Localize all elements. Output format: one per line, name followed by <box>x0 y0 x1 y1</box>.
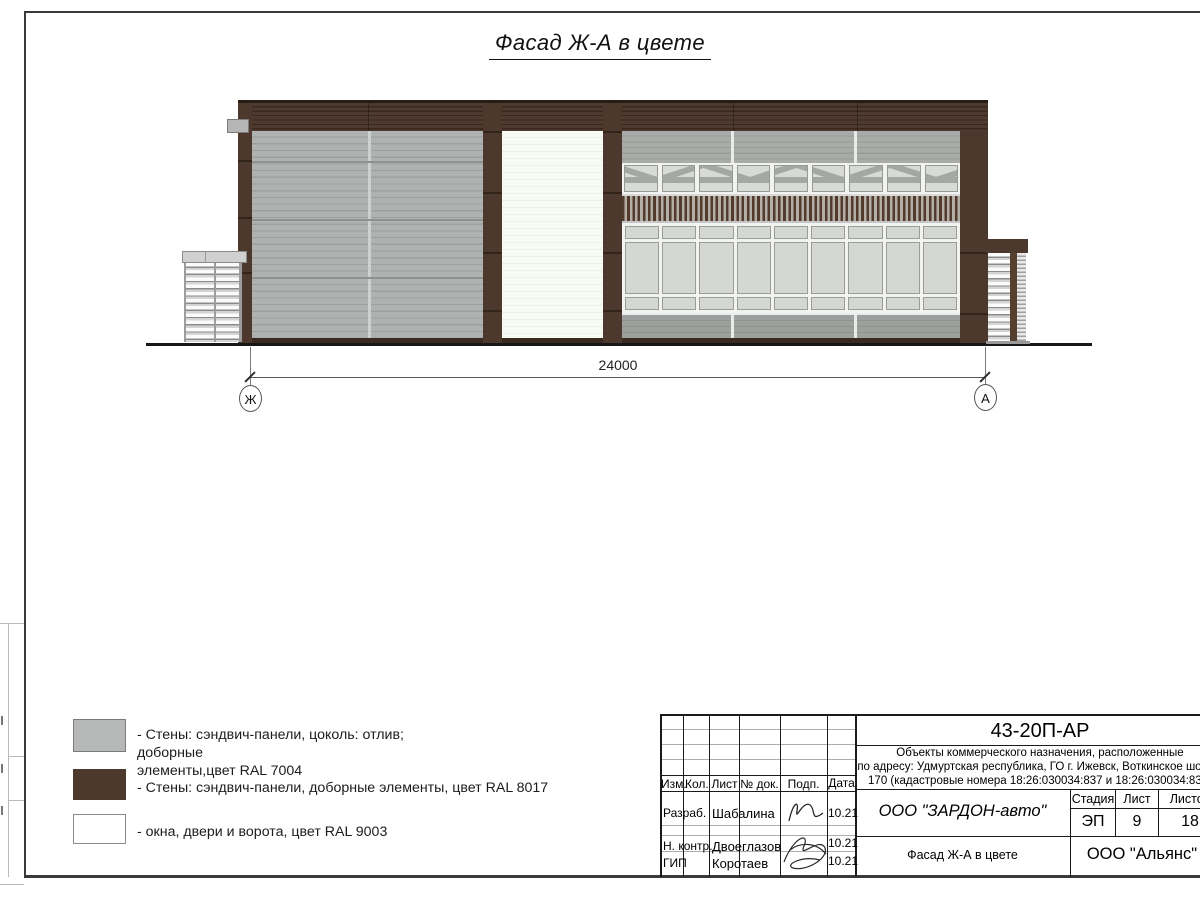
clerestory-pane <box>737 165 771 192</box>
tb-col-podp: Подп. <box>781 777 826 791</box>
tb-sheet-value: 9 <box>1116 813 1158 831</box>
column-joint <box>960 252 988 254</box>
window-column <box>811 226 845 310</box>
window-pane <box>625 297 659 310</box>
frame-bottom <box>24 875 1200 878</box>
window-pane <box>774 297 808 310</box>
window-pane <box>811 297 845 310</box>
clerestory-pane <box>849 165 883 192</box>
margin-tick <box>8 756 24 757</box>
tb-line <box>855 789 1200 790</box>
margin-tick <box>0 623 24 624</box>
louver-post <box>214 263 216 342</box>
window-column <box>699 226 733 310</box>
band-divider <box>731 131 734 163</box>
ground-line <box>146 343 1092 346</box>
tb-stage-label: Стадия <box>1071 792 1115 806</box>
window-column <box>923 226 957 310</box>
window-pane <box>774 242 808 294</box>
extension-line-left <box>250 347 251 389</box>
legend-item-1: - Стены: сэндвич-панели, цоколь: отлив; … <box>137 726 467 780</box>
window-pane <box>923 297 957 310</box>
column-joint <box>603 252 622 254</box>
clerestory-pane <box>662 165 696 192</box>
window-pane <box>848 242 882 294</box>
louver-cap-left <box>182 251 247 263</box>
margin-tick <box>8 800 24 801</box>
tb-date-1: 10.21 <box>828 806 855 820</box>
tb-line <box>1070 808 1200 809</box>
tb-line <box>660 791 855 792</box>
window-pane <box>886 297 920 310</box>
column-joint <box>603 131 622 133</box>
facade-column-b <box>603 103 622 343</box>
louver-post <box>184 263 186 342</box>
facade-column-a <box>483 103 502 343</box>
panel-joint <box>252 161 483 163</box>
column-joint <box>483 192 502 194</box>
parapet-joint <box>733 103 734 134</box>
window-pane <box>699 226 733 239</box>
page-title-text: Фасад Ж-А в цвете <box>489 30 711 60</box>
axis-bubble-zh: Ж <box>239 385 262 412</box>
window-pane <box>699 242 733 294</box>
tb-description-line: 170 (кадастровые номера 18:26:030034:837… <box>855 775 1200 789</box>
clerestory-pane <box>774 165 808 192</box>
tb-role-3: ГИП <box>663 856 687 870</box>
parapet-joint <box>857 103 858 134</box>
margin-line <box>8 623 9 877</box>
tb-col-doc: № док. <box>740 777 779 791</box>
facade-corner-right <box>960 131 988 343</box>
window-pane <box>737 297 771 310</box>
window-pane <box>699 297 733 310</box>
window-column <box>625 226 659 310</box>
tb-col-kol: Кол. <box>685 777 708 791</box>
band-divider <box>854 131 857 163</box>
clerestory-pane <box>887 165 921 192</box>
tb-description: Объекты коммерческого назначения, распол… <box>855 747 1200 788</box>
window-column <box>737 226 771 310</box>
band-divider <box>854 315 857 340</box>
tb-vline <box>660 714 662 877</box>
dimension-label: 24000 <box>548 357 688 373</box>
louver-base-right <box>986 341 1030 344</box>
window-pane <box>811 242 845 294</box>
facade-base-band <box>622 313 960 340</box>
window-pane <box>848 297 882 310</box>
window-column <box>774 226 808 310</box>
window-pane <box>737 226 771 239</box>
window-pane <box>662 297 696 310</box>
clerestory-pane <box>624 165 658 192</box>
louver-side-return <box>1017 253 1026 341</box>
louver-post <box>239 263 242 342</box>
tb-name-3: Коротаев <box>712 856 768 871</box>
window-pane <box>774 226 808 239</box>
facade-gate <box>502 131 603 341</box>
louver-cap-right <box>986 239 1028 253</box>
tb-description-line: Объекты коммерческого назначения, распол… <box>855 747 1200 761</box>
tb-sheet-label: Лист <box>1116 792 1158 806</box>
legend-swatch-gray <box>73 719 126 752</box>
tb-drawing-name: Фасад Ж-А в цвете <box>857 848 1068 862</box>
tb-line <box>660 714 1200 716</box>
tb-doc-code: 43-20П-АР <box>855 720 1200 743</box>
clerestory-pane <box>699 165 733 192</box>
facade-slat-band <box>622 194 960 223</box>
tb-org-name: ООО "Альянс" <box>1072 845 1200 864</box>
tb-sheets-value: 18 <box>1159 813 1200 831</box>
dimension-line <box>250 377 986 378</box>
window-pane <box>923 242 957 294</box>
window-pane <box>737 242 771 294</box>
margin-mark <box>1 716 3 725</box>
window-pane <box>886 242 920 294</box>
column-joint <box>483 310 502 312</box>
parapet-joint <box>368 103 369 134</box>
panel-joint <box>252 277 483 279</box>
tb-line <box>660 775 855 776</box>
tb-col-list: Лист <box>711 777 738 791</box>
column-joint <box>238 160 252 162</box>
tb-name-2: Двоеглазов <box>712 839 781 854</box>
clerestory-pane <box>812 165 846 192</box>
window-pane <box>662 242 696 294</box>
window-pane <box>811 226 845 239</box>
column-joint <box>960 313 988 315</box>
axis-bubble-a: А <box>974 384 997 411</box>
window-pane <box>625 226 659 239</box>
tb-line <box>855 836 1200 837</box>
extension-line-right <box>985 347 986 389</box>
column-joint <box>483 252 502 254</box>
drawing-sheet: { "sheet": { "title": "Фасад Ж-А в цвете… <box>0 0 1200 900</box>
clerestory-overlay <box>624 165 958 192</box>
column-joint <box>603 192 622 194</box>
tb-col-izm: Изм. <box>661 777 683 791</box>
window-pane <box>848 226 882 239</box>
tb-role-2: Н. контр. <box>663 839 713 853</box>
tb-sheets-label: Листов <box>1159 792 1200 806</box>
tb-role-1: Разраб. <box>663 806 706 820</box>
facade-band-top <box>622 131 960 163</box>
window-column <box>886 226 920 310</box>
page-title: Фасад Ж-А в цвете <box>420 30 780 60</box>
window-column <box>848 226 882 310</box>
roof-outlet <box>227 119 249 133</box>
tb-lightline <box>660 729 855 730</box>
column-joint <box>238 217 252 219</box>
legend-text: - Стены: сэндвич-панели, цоколь: отлив; … <box>137 726 467 762</box>
column-joint <box>603 310 622 312</box>
tb-lightline <box>660 759 855 760</box>
margin-mark <box>1 764 3 773</box>
tb-company: ООО "ЗАРДОН-авто" <box>857 802 1068 821</box>
clerestory-row <box>622 163 960 194</box>
window-grid <box>622 223 960 313</box>
cap-seam <box>205 252 206 262</box>
tb-lightline <box>660 744 855 745</box>
legend-swatch-brown <box>73 769 126 800</box>
margin-tick <box>0 884 24 885</box>
signature-gip <box>776 828 834 876</box>
louver-post-right <box>1010 253 1017 341</box>
panel-joint <box>252 219 483 221</box>
tb-col-data: Дата <box>828 776 855 790</box>
clerestory-pane <box>925 165 959 192</box>
column-joint <box>483 131 502 133</box>
louver-screen-right <box>988 253 1010 341</box>
window-pane <box>886 226 920 239</box>
frame-left <box>24 11 26 877</box>
legend-text: элементы,цвет RAL 7004 <box>137 762 467 780</box>
legend-item-2: - Стены: сэндвич-панели, доборные элемен… <box>137 779 597 797</box>
band-divider <box>731 315 734 340</box>
tb-description-line: по адресу: Удмуртская республика, ГО г. … <box>855 761 1200 775</box>
window-pane <box>625 242 659 294</box>
louver-screen-left <box>184 263 242 342</box>
window-pane <box>662 226 696 239</box>
frame-top <box>24 11 1200 13</box>
legend-swatch-white <box>73 814 126 844</box>
window-pane <box>923 226 957 239</box>
margin-mark <box>1 806 3 815</box>
facade-wall-left <box>252 131 483 343</box>
tb-stage-value: ЭП <box>1071 813 1115 831</box>
panel-divider <box>368 131 371 343</box>
legend-item-3: - окна, двери и ворота, цвет RAL 9003 <box>137 823 537 841</box>
window-column <box>662 226 696 310</box>
tb-name-1: Шабалина <box>712 806 775 821</box>
